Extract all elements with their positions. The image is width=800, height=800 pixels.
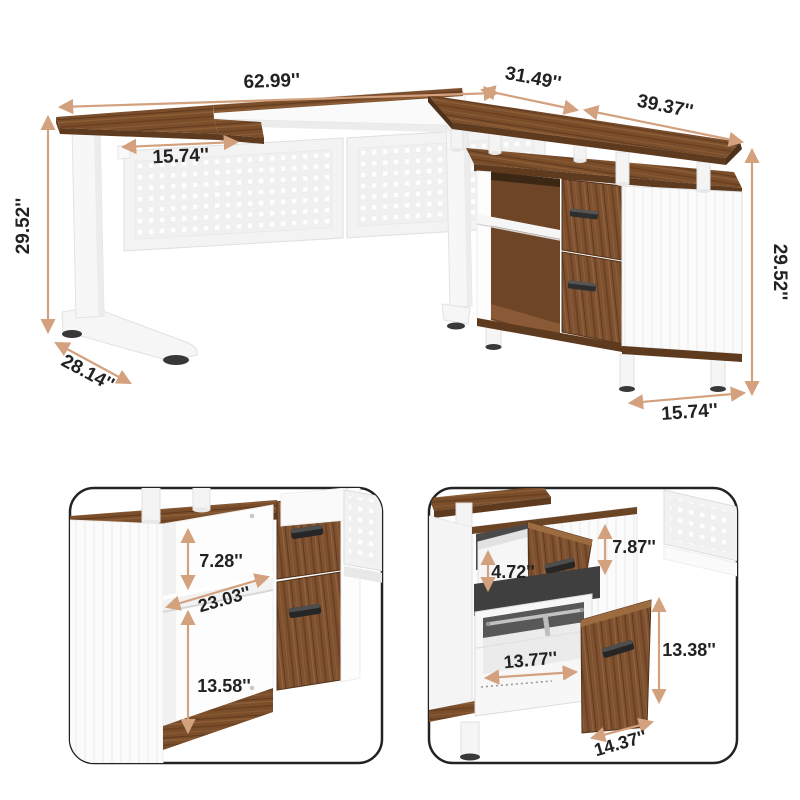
cabinet-leg [461,722,479,756]
dim-label-desk-length: 62.99'' [243,70,300,93]
leg-foot-pad [163,355,189,365]
dim-label-upper-compartment: 7.28'' [199,551,243,571]
dim-label-top-drawer-inner: 4.72'' [491,562,535,582]
cabinet-drawer-bottom [562,252,622,344]
cam-screw [250,514,255,519]
cabinet-drawer-top [562,179,622,260]
dim-label-height-left: 29.52'' [13,198,34,255]
main-product-view: 62.99'' 31.49'' 39.37'' 15.74'' 29.52'' … [13,63,790,425]
dim-height-right: 29.52'' [752,150,790,394]
dim-corner-return-length: 31.49'' [482,63,577,110]
dim-label-lower-compartment: 13.58'' [197,676,251,696]
dim-label-side-desk: 39.37'' [635,91,695,123]
cabinet-left-stile [477,171,491,322]
dim-label-file-height: 13.38'' [662,640,716,660]
dim-label-corner-return: 31.49'' [503,63,563,94]
diagram-canvas: 62.99'' 31.49'' 39.37'' 15.74'' 29.52'' … [0,0,800,800]
dim-cabinet-depth: 15.74'' [630,393,744,425]
dim-label-upper-section: 7.87'' [612,537,656,557]
cabinet-side-panel [622,186,742,354]
inset-shelf-drawer-bottom [277,572,341,690]
dim-label-cabinet-depth: 15.74'' [661,400,719,425]
dim-label-height-right: 29.52'' [769,244,790,301]
dim-label-foot-depth: 28.14'' [58,351,118,396]
leg-foot-pad [62,330,82,338]
inset-cabinet-left-side [429,516,472,714]
dim-foot-depth: 28.14'' [56,343,130,396]
inset-desk-surface [281,488,346,526]
dim-height-left: 29.52'' [13,117,48,332]
inset-shelf-side-panel [70,520,163,763]
dim-label-return-depth: 15.74'' [152,145,209,168]
shelf-detail-inset: 7.28'' 23.03'' 13.58'' [70,486,382,763]
drawer-detail-inset: 4.72'' 7.87'' 13.77'' 13.38'' 14.37'' [429,486,738,763]
product-dimension-image: 62.99'' 31.49'' 39.37'' 15.74'' 29.52'' … [0,0,800,800]
